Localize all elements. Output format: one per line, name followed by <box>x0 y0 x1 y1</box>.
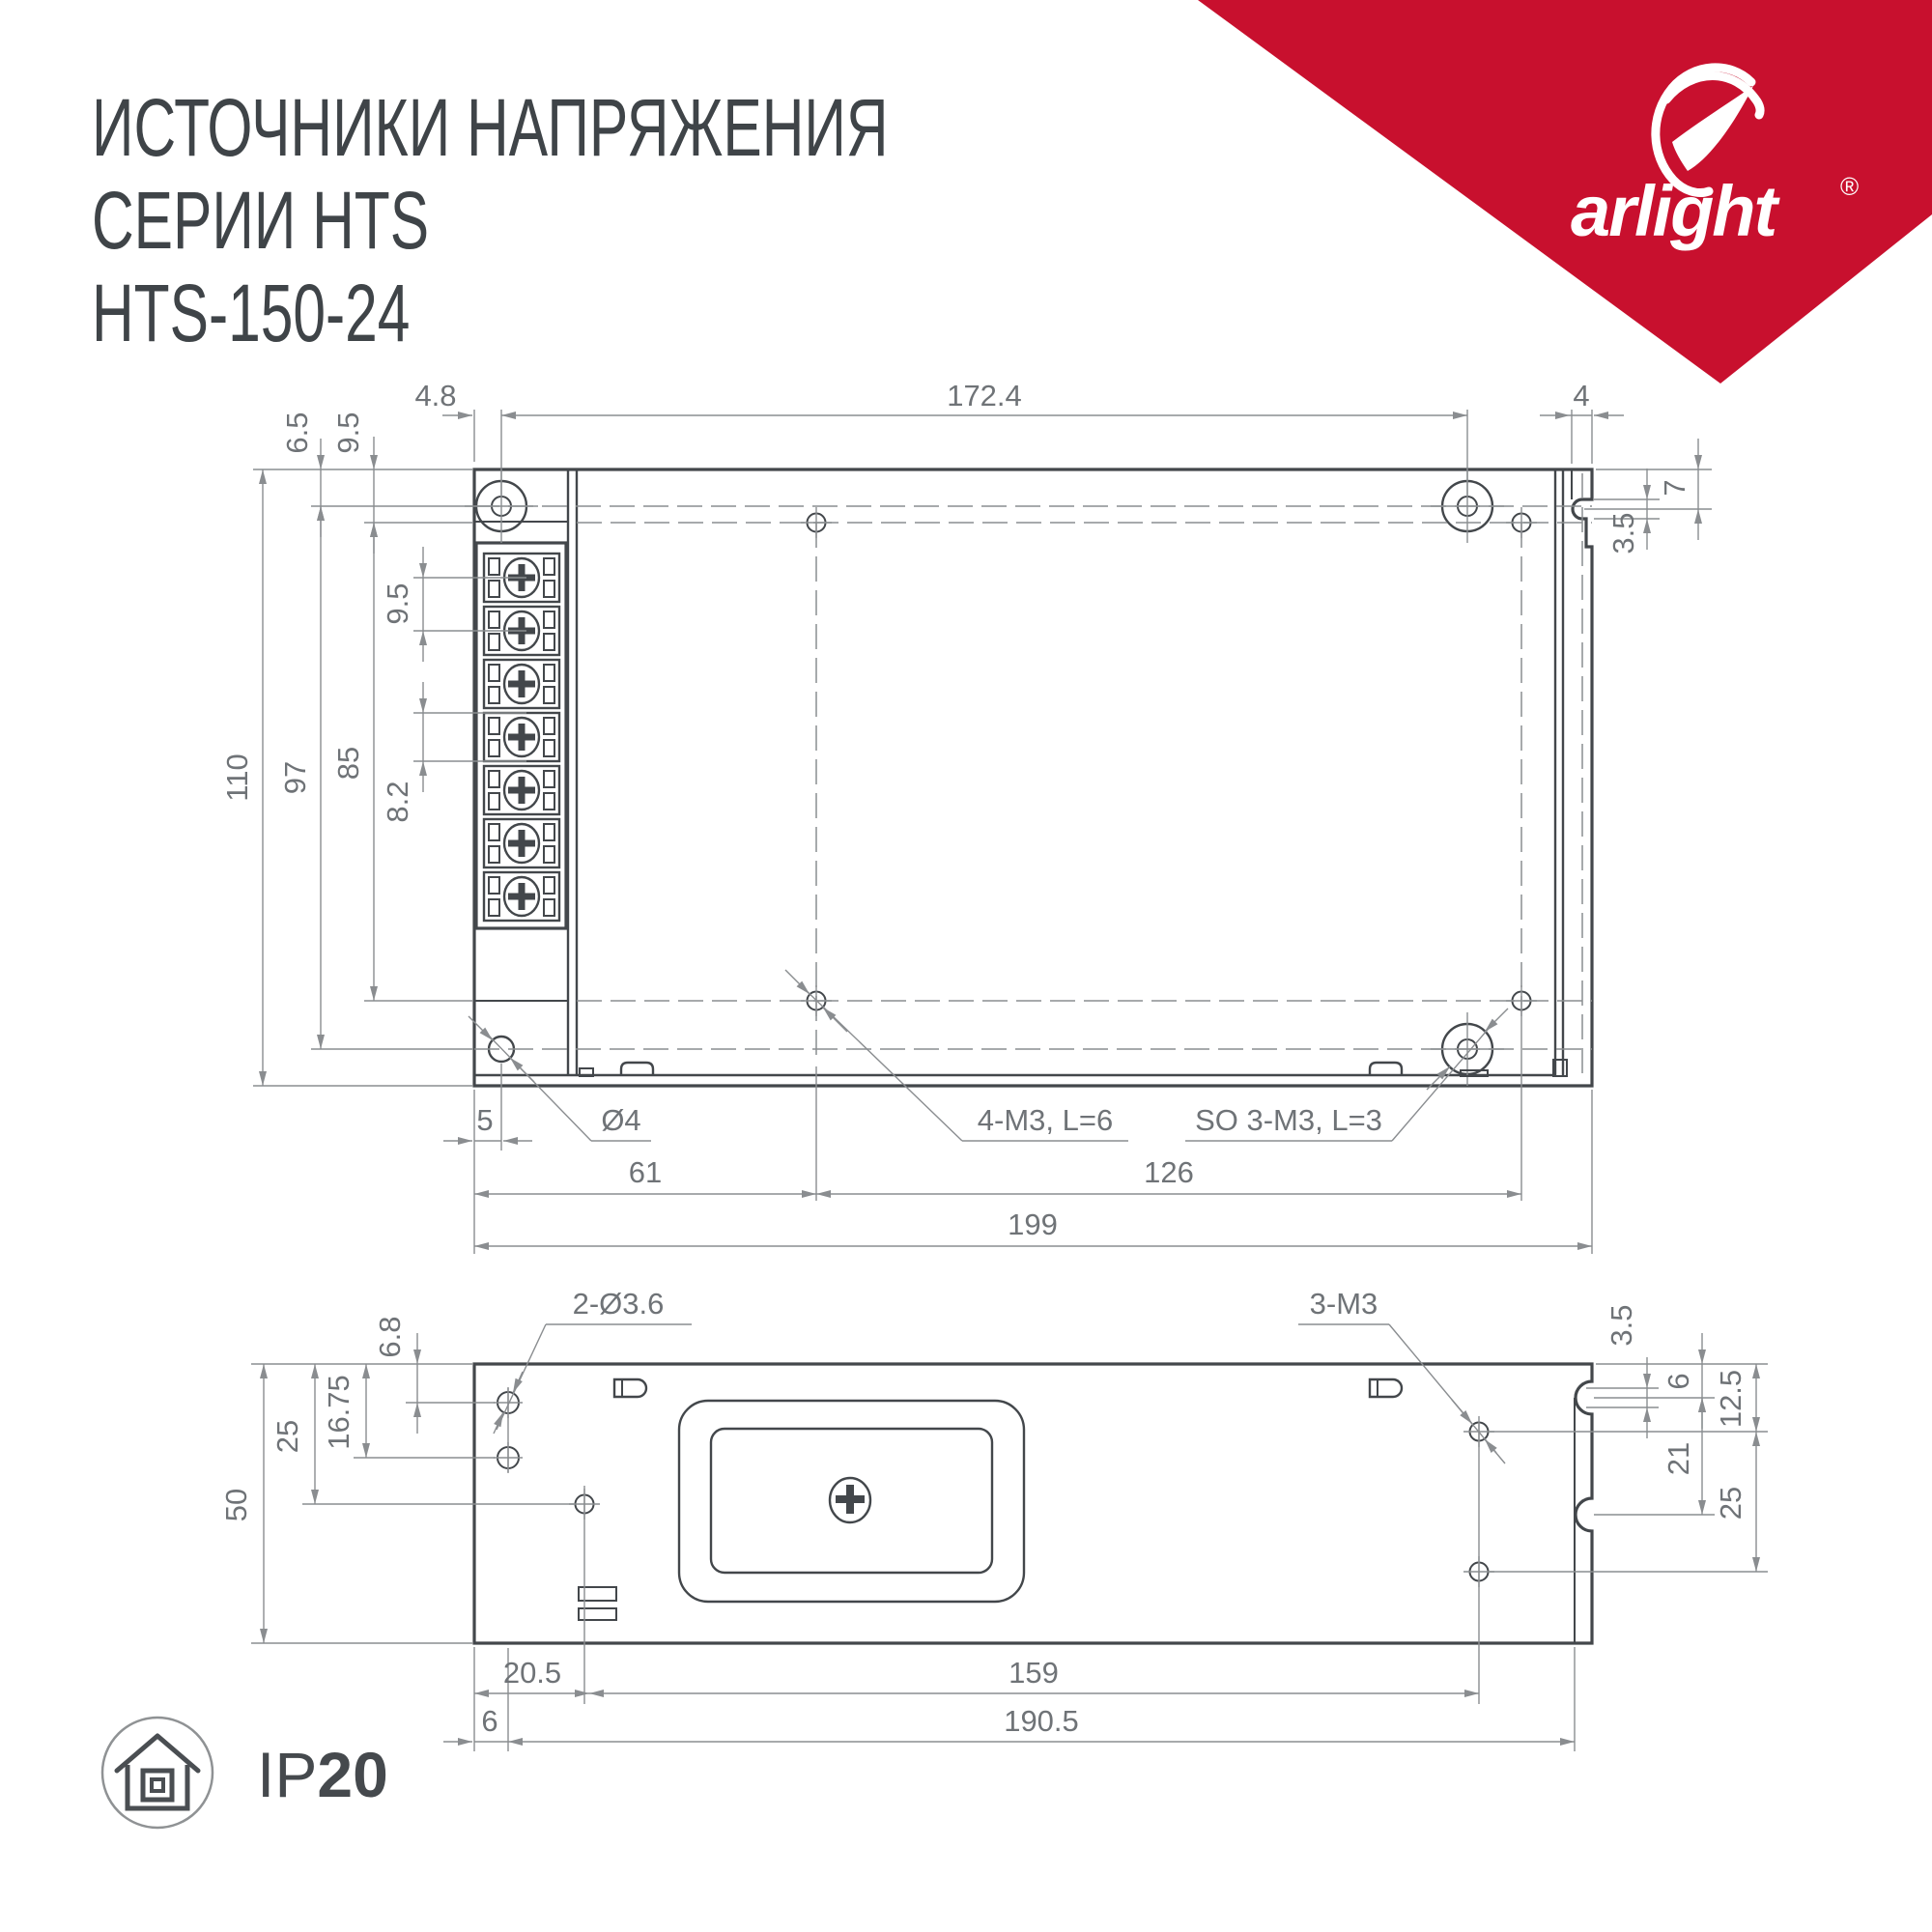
top-view-labels: 4.8 172.4 4 6.5 9.5 7 3.5 110 97 85 9.5 … <box>220 379 1691 1241</box>
dim-hole2-offset-label: 16.75 <box>322 1375 355 1450</box>
ip-rating-badge: IP20 <box>102 1718 388 1828</box>
dim-hole3-offset-label: 25 <box>270 1420 304 1453</box>
dim-bottom-total-label: 190.5 <box>1004 1704 1079 1738</box>
ip-rating-text: IP20 <box>257 1739 388 1810</box>
dim-bottom-span-left-label: 61 <box>629 1155 662 1189</box>
dim-keyslot-width-label: 3.5 <box>1605 1304 1638 1346</box>
dim-mount-span-y-label: 97 <box>278 761 312 794</box>
dim-hole1-offset-label: 6.8 <box>373 1316 407 1357</box>
technical-drawing: 4.8 172.4 4 6.5 9.5 7 3.5 110 97 85 9.5 … <box>0 0 1932 1932</box>
dim-slot-depth-label: 7 <box>1658 479 1691 496</box>
dim-keyslot-pitch-label: 21 <box>1662 1442 1695 1475</box>
dim-bottom-left-offset-label: 20.5 <box>503 1656 561 1690</box>
house-icon <box>117 1736 198 1808</box>
dim-side-height-label: 50 <box>219 1489 253 1521</box>
dim-corner-hole-offset-label: 5 <box>476 1103 493 1137</box>
bottom-view-labels: 2-Ø3.6 3-M3 6.8 16.75 25 50 3.5 6 12.5 2… <box>219 1287 1747 1738</box>
callout-side-holes-label: 2-Ø3.6 <box>573 1287 665 1321</box>
dim-terminal-cell-label: 8.2 <box>381 781 414 822</box>
dim-keyslot-center-label: 6 <box>1662 1373 1695 1389</box>
dim-terminal-pitch-label: 9.5 <box>381 582 414 624</box>
bottom-view-geometry <box>474 1364 1592 1643</box>
dim-bottom-span-mid-label: 126 <box>1144 1155 1194 1189</box>
datasheet-page: ИСТОЧНИКИ НАПРЯЖЕНИЯ СЕРИИ HTS HTS-150-2… <box>0 0 1932 1932</box>
dim-case-length-label: 199 <box>1008 1207 1058 1241</box>
callout-standoff-label: SO 3-M3, L=3 <box>1195 1103 1382 1137</box>
dim-mount-span-x-label: 172.4 <box>947 379 1022 412</box>
dim-hole-row2-label: 25 <box>1714 1487 1747 1520</box>
top-view-centerlines <box>474 473 1592 1082</box>
dim-top-offset-label: 4.8 <box>414 379 456 412</box>
dim-hole-row-second-label: 9.5 <box>331 412 365 453</box>
dim-slot-width-label: 3.5 <box>1606 512 1640 554</box>
dim-corner-hole-dia-label: Ø4 <box>601 1103 640 1137</box>
ip-rating-value: 20 <box>317 1739 387 1810</box>
dim-bottom-span-label: 159 <box>1009 1656 1059 1690</box>
bottom-view: 2-Ø3.6 3-M3 6.8 16.75 25 50 3.5 6 12.5 2… <box>219 1287 1768 1751</box>
dim-case-height-label: 110 <box>220 753 254 801</box>
dim-side-hole-offset-label: 6 <box>481 1704 497 1738</box>
ip-prefix: IP <box>257 1739 317 1810</box>
dim-hole-row1-label: 12.5 <box>1714 1370 1747 1428</box>
dim-flange-width-label: 4 <box>1573 379 1589 412</box>
dim-hole-row-top-label: 6.5 <box>280 412 314 453</box>
dim-inner-span-y-label: 85 <box>331 747 365 780</box>
top-view: 4.8 172.4 4 6.5 9.5 7 3.5 110 97 85 9.5 … <box>220 379 1712 1254</box>
callout-m3-label: 4-M3, L=6 <box>978 1103 1113 1137</box>
top-view-geometry <box>465 469 1592 1086</box>
callout-3m3-label: 3-M3 <box>1310 1287 1378 1321</box>
